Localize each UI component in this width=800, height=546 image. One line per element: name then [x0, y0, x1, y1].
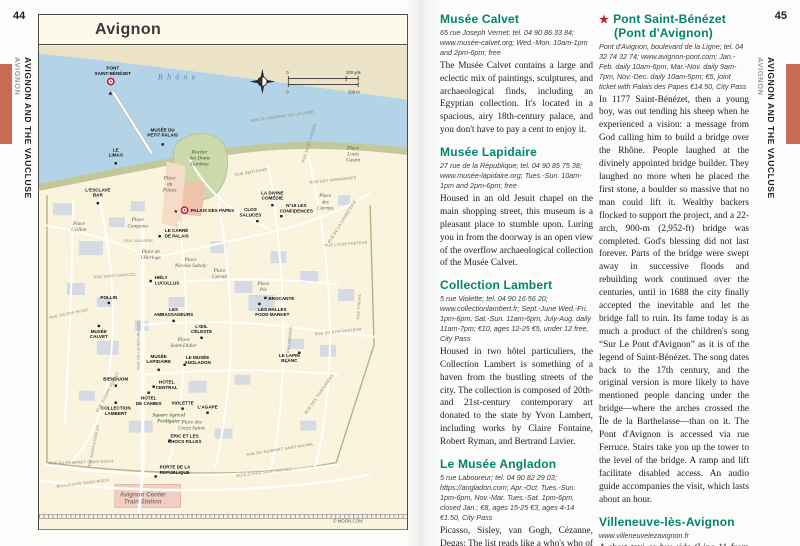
- place-label: Place desCorps Saints: [178, 420, 205, 432]
- article-title: Villeneuve-lès-Avignon: [599, 516, 749, 529]
- top-sight-star-icon: ★: [599, 14, 609, 26]
- article-title: Le Musée Angladon: [440, 458, 593, 471]
- chapter-color-bar: [0, 64, 12, 144]
- street-label: RUE MOLIÈRE: [124, 238, 153, 243]
- article-pont-saint-benezet: ★Pont Saint-Bénézet(Pont d'Avignon) Pont…: [599, 13, 749, 507]
- scale-yds: 200 yds: [346, 70, 361, 75]
- article-title: Collection Lambert: [440, 279, 593, 292]
- map-label: VIOLETTE: [171, 401, 193, 406]
- article-title: ★Pont Saint-Bénézet(Pont d'Avignon): [599, 13, 749, 40]
- map-label: L'AGAPE: [197, 405, 217, 410]
- article-musee-angladon: Le Musée Angladon 5 rue Laboureur; tel. …: [440, 458, 593, 546]
- park-label: Rocherdes DomsGardens: [189, 149, 210, 167]
- article-musee-lapidaire: Musée Lapidaire 27 rue de la République;…: [440, 146, 593, 270]
- text-column-right: ★Pont Saint-Bénézet(Pont d'Avignon) Pont…: [599, 13, 749, 546]
- place-label: PlaceCrillon: [71, 221, 87, 233]
- listing-details: www.villeneuvelezavignon.fr: [599, 531, 749, 541]
- map-label: MUSÉECALVET: [90, 327, 108, 339]
- star-glyph: ★: [108, 91, 113, 98]
- map-label: LE MUSÉEANGLADON: [184, 353, 210, 365]
- city-map: Avignon: [38, 14, 408, 530]
- map-copyright: © MOON.COM: [333, 518, 363, 523]
- map-label: PALAIS DES PAPES: [191, 208, 235, 213]
- article-body: The Musée Calvet contains a large and ec…: [440, 60, 593, 137]
- street-label: RUE DE LA RÉPUBLIQUE: [136, 319, 141, 370]
- listing-details: 5 rue Laboureur; tel. 04 90 82 29 03; ht…: [440, 473, 593, 523]
- map-title: Avignon: [39, 15, 407, 45]
- running-head-title: AVIGNON AND THE VAUCLUSE: [766, 57, 776, 199]
- place-label: Place del'Horloge: [141, 249, 162, 261]
- map-label: PORTE DE LARÉPUBLIQUE: [160, 465, 191, 475]
- article-body: Housed in an old Jesuit chapel on the ma…: [440, 193, 593, 270]
- place-label: PlaceLouisGastin: [346, 145, 360, 163]
- scale-m: 200 m: [348, 90, 360, 95]
- running-head-subtitle: AVIGNON: [756, 57, 765, 96]
- map-label: MUSÉE DUPETIT PALAIS: [147, 125, 178, 137]
- listing-details: 27 rue de la République; tel. 04 90 85 7…: [440, 161, 593, 191]
- page-number-right: 45: [775, 10, 787, 22]
- map-label: ERIC ET LESCHOCS FILLES: [168, 434, 202, 444]
- map-label: LA DIVINECOMÉDIE: [261, 190, 283, 200]
- map-label: COLLECTIONLAMBERT: [101, 406, 131, 416]
- page-number-left: 44: [13, 10, 25, 22]
- listing-details: Pont d'Avignon, boulevard de la Ligne; t…: [599, 42, 749, 92]
- train-station-label: Avignon CenterTrain Station: [119, 491, 167, 505]
- article-villeneuve: Villeneuve-lès-Avignon www.villeneuvelez…: [599, 516, 749, 546]
- article-body: Housed in two hôtel particuliers, the Co…: [440, 346, 593, 449]
- star-glyph: ★: [174, 209, 179, 215]
- article-title: Musée Calvet: [440, 13, 593, 26]
- article-title: Musée Lapidaire: [440, 146, 593, 159]
- river-label: Rhône: [157, 72, 200, 82]
- place-label: PlaceCarnot: [212, 268, 227, 280]
- page-spine: [406, 0, 442, 546]
- article-body: In 1177 Saint-Bénézet, then a young boy,…: [599, 94, 749, 507]
- listing-details: 5 rue Violette; tel. 04 90 16 56 20; www…: [440, 294, 593, 344]
- map-label: LE CARRÉDE PALAIS: [165, 226, 189, 238]
- running-head-subtitle: AVIGNON: [13, 57, 22, 96]
- book-spread: 44 AVIGNON AVIGNON AND THE VAUCLUSE Avig…: [0, 0, 800, 546]
- article-collection-lambert: Collection Lambert 5 rue Violette; tel. …: [440, 279, 593, 449]
- article-musee-calvet: Musée Calvet 65 rue Joseph Vernet; tel. …: [440, 13, 593, 137]
- article-body: Picasso, Sisley, van Gogh, Cézanne, Dega…: [440, 525, 593, 546]
- chapter-color-bar: [786, 64, 800, 144]
- map-label: POLLIN: [100, 295, 117, 300]
- article-title-line2: (Pont d'Avignon): [599, 27, 749, 40]
- text-column-left: Musée Calvet 65 rue Joseph Vernet; tel. …: [440, 13, 593, 546]
- running-head-title: AVIGNON AND THE VAUCLUSE: [23, 57, 33, 199]
- map-label: LES HALLESFOOD MARKET: [255, 307, 289, 317]
- map-label: BROCANTE: [268, 296, 294, 301]
- listing-details: 65 rue Joseph Vernet; tel. 04 90 86 33 8…: [440, 28, 593, 58]
- map-canvas: Rhône 0 200 yds 0 200 m ★: [39, 45, 407, 530]
- article-body: A short taxi or bus ride (Line 11 from c…: [599, 542, 749, 546]
